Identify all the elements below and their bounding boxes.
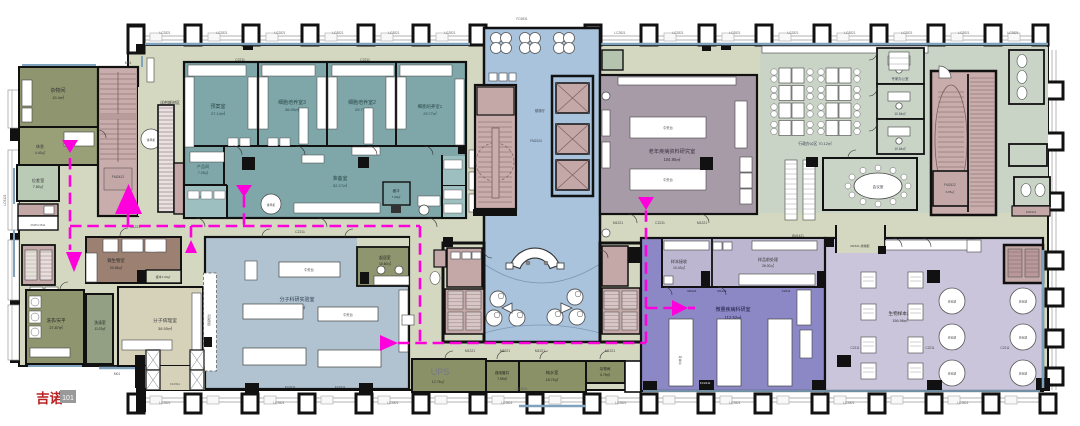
svg-text:M1221: M1221 <box>697 221 707 225</box>
svg-text:缓冲: 缓冲 <box>393 188 400 193</box>
svg-text:101: 101 <box>62 395 74 402</box>
svg-text:排风机: 排风机 <box>147 138 156 142</box>
svg-text:27.14㎡: 27.14㎡ <box>211 110 225 116</box>
svg-text:休息: 休息 <box>36 143 44 149</box>
svg-text:预案室: 预案室 <box>210 103 225 110</box>
svg-text:会议室: 会议室 <box>873 184 884 189</box>
svg-text:LC2821: LC2821 <box>1007 31 1018 35</box>
svg-text:样本接收: 样本接收 <box>671 258 687 264</box>
svg-text:M01: M01 <box>125 61 132 65</box>
svg-text:C2211: C2211 <box>782 289 791 293</box>
svg-text:缓冲 1.60㎡: 缓冲 1.60㎡ <box>156 275 171 279</box>
svg-text:中央台: 中央台 <box>343 312 353 317</box>
svg-text:预留柜位: 预留柜位 <box>206 314 211 326</box>
svg-text:中央台: 中央台 <box>304 267 314 272</box>
svg-text:杂物间: 杂物间 <box>600 366 611 371</box>
svg-text:中央台: 中央台 <box>677 355 682 364</box>
svg-text:LC2821: LC2821 <box>615 401 626 405</box>
svg-text:11.07㎡: 11.07㎡ <box>95 326 107 331</box>
svg-text:微量疾病科研室: 微量疾病科研室 <box>715 306 750 313</box>
svg-text:LC2821: LC2821 <box>901 31 912 35</box>
svg-text:FM2124: FM2124 <box>530 139 542 143</box>
svg-text:15.4㎡: 15.4㎡ <box>52 94 64 100</box>
svg-text:产品间: 产品间 <box>197 163 209 169</box>
svg-text:KC2211: KC2211 <box>700 381 711 385</box>
svg-text:纯水室: 纯水室 <box>546 369 559 375</box>
svg-text:M01: M01 <box>114 372 121 376</box>
svg-text:C2211: C2211 <box>235 58 245 62</box>
svg-text:7.20㎡: 7.20㎡ <box>392 194 401 199</box>
svg-text:10.64㎡: 10.64㎡ <box>894 146 906 151</box>
svg-text:C2211: C2211 <box>655 221 665 225</box>
svg-text:LC2821: LC2821 <box>672 31 683 35</box>
svg-text:液氮罐: 液氮罐 <box>1019 300 1028 304</box>
svg-text:M1221: M1221 <box>613 221 623 225</box>
svg-text:LC2821: LC2821 <box>729 31 740 35</box>
svg-text:洗涤室: 洗涤室 <box>94 320 106 325</box>
svg-text:36.90㎡: 36.90㎡ <box>285 106 299 112</box>
svg-text:杂物间: 杂物间 <box>50 87 65 94</box>
svg-text:LC2821: LC2821 <box>844 31 855 35</box>
svg-text:27.87㎡: 27.87㎡ <box>49 325 63 330</box>
svg-text:52.27㎡: 52.27㎡ <box>333 182 347 188</box>
svg-text:中央台: 中央台 <box>663 177 673 182</box>
svg-text:LC2821: LC2821 <box>843 401 854 405</box>
svg-text:M1521 烘箱柜: M1521 烘箱柜 <box>850 243 869 248</box>
svg-text:细胞培养室3: 细胞培养室3 <box>278 99 306 106</box>
svg-text:候梯厅: 候梯厅 <box>535 108 546 113</box>
svg-text:104.95㎡: 104.95㎡ <box>664 156 682 162</box>
svg-text:FM/KC1511: FM/KC1511 <box>31 223 46 227</box>
svg-text:位差室: 位差室 <box>32 177 45 183</box>
svg-text:M1221: M1221 <box>500 349 510 353</box>
svg-text:KC2211: KC2211 <box>335 385 346 389</box>
svg-text:起居室: 起居室 <box>379 255 391 260</box>
svg-text:液氮罐: 液氮罐 <box>948 336 957 340</box>
svg-text:液氮罐: 液氮罐 <box>1019 336 1028 340</box>
svg-text:行政办公区 70.12㎡: 行政办公区 70.12㎡ <box>798 141 832 146</box>
svg-text:LC2821: LC2821 <box>614 31 625 35</box>
svg-text:M1221: M1221 <box>148 249 157 253</box>
svg-text:C2211: C2211 <box>850 346 859 350</box>
svg-text:液氮罐: 液氮罐 <box>948 372 957 376</box>
svg-text:强电管井: 强电管井 <box>495 370 510 375</box>
svg-text:C2211: C2211 <box>360 58 370 62</box>
svg-text:细胞培养室1: 细胞培养室1 <box>418 103 443 110</box>
svg-text:26.00㎡: 26.00㎡ <box>762 263 774 268</box>
svg-text:分子科研实验室: 分子科研实验室 <box>279 296 314 303</box>
svg-text:FC6931: FC6931 <box>516 387 528 391</box>
svg-text:LC2821: LC2821 <box>216 31 227 35</box>
svg-text:6.75㎡: 6.75㎡ <box>600 372 610 377</box>
svg-text:20.85㎡: 20.85㎡ <box>110 265 123 270</box>
svg-text:吉诺: 吉诺 <box>36 390 63 406</box>
svg-text:15.70㎡: 15.70㎡ <box>546 377 559 382</box>
svg-text:C2211: C2211 <box>925 346 934 350</box>
svg-text:KC2211: KC2211 <box>285 385 296 389</box>
svg-text:LC2821: LC2821 <box>787 31 798 35</box>
svg-text:10.64㎡: 10.64㎡ <box>894 111 906 116</box>
svg-text:老年疾病资料研究室: 老年疾病资料研究室 <box>649 147 696 155</box>
svg-text:微生物室: 微生物室 <box>107 257 125 264</box>
svg-text:液氮罐: 液氮罐 <box>948 300 957 304</box>
svg-text:LC8121: LC8121 <box>3 194 7 205</box>
svg-text:LC2821: LC2821 <box>957 401 968 405</box>
svg-text:洗衣/天平: 洗衣/天平 <box>47 317 66 324</box>
svg-text:C2211: C2211 <box>295 230 305 234</box>
svg-text:LC2821: LC2821 <box>958 31 969 35</box>
svg-text:FM2422: FM2422 <box>112 175 125 179</box>
svg-text:LC2821: LC2821 <box>388 31 399 35</box>
svg-text:FC6931: FC6931 <box>516 17 528 21</box>
svg-text:29.77㎡: 29.77㎡ <box>423 111 437 116</box>
svg-text:M1021: M1021 <box>687 289 697 293</box>
svg-text:LC2821: LC2821 <box>273 401 284 405</box>
svg-text:7.80㎡: 7.80㎡ <box>33 184 44 189</box>
svg-text:液氮罐: 液氮罐 <box>1019 372 1028 376</box>
svg-text:UPS: UPS <box>431 367 450 377</box>
svg-text:专家办公室: 专家办公室 <box>892 76 910 81</box>
svg-text:6.85㎡: 6.85㎡ <box>946 189 955 194</box>
svg-text:LC2821: LC2821 <box>159 401 170 405</box>
svg-text:KC1511: KC1511 <box>170 382 180 386</box>
svg-text:38.55㎡: 38.55㎡ <box>158 325 172 331</box>
svg-text:10.43㎡: 10.43㎡ <box>673 265 685 270</box>
svg-text:LC2821: LC2821 <box>729 401 740 405</box>
svg-text:LC2821: LC2821 <box>501 401 512 405</box>
svg-text:FM2422: FM2422 <box>1026 210 1037 214</box>
svg-text:试剂耗材区: 试剂耗材区 <box>160 99 180 105</box>
svg-text:LC2821: LC2821 <box>444 31 455 35</box>
svg-text:LC2821: LC2821 <box>332 31 343 35</box>
svg-text:分子病理室: 分子病理室 <box>153 317 177 324</box>
svg-text:准备室: 准备室 <box>332 175 347 182</box>
svg-text:样品前处理: 样品前处理 <box>758 256 778 262</box>
svg-text:中央台: 中央台 <box>663 125 673 130</box>
svg-text:7.59㎡: 7.59㎡ <box>497 376 507 381</box>
svg-text:7.28㎡: 7.28㎡ <box>198 170 209 175</box>
svg-text:LC2821: LC2821 <box>274 31 285 35</box>
svg-text:细胞培养室2: 细胞培养室2 <box>348 99 376 106</box>
svg-text:4.40㎡: 4.40㎡ <box>35 150 46 155</box>
svg-text:M1221: M1221 <box>465 349 475 353</box>
svg-text:12.76㎡: 12.76㎡ <box>432 379 445 384</box>
svg-text:LC2821: LC2821 <box>159 31 170 35</box>
svg-text:排风机: 排风机 <box>267 203 276 207</box>
svg-text:FM2422: FM2422 <box>944 183 956 187</box>
svg-text:LC2821: LC2821 <box>387 401 398 405</box>
svg-text:10.60㎡: 10.60㎡ <box>379 261 391 266</box>
svg-text:C2211: C2211 <box>1000 346 1009 350</box>
svg-text:156.96㎡: 156.96㎡ <box>892 318 908 323</box>
